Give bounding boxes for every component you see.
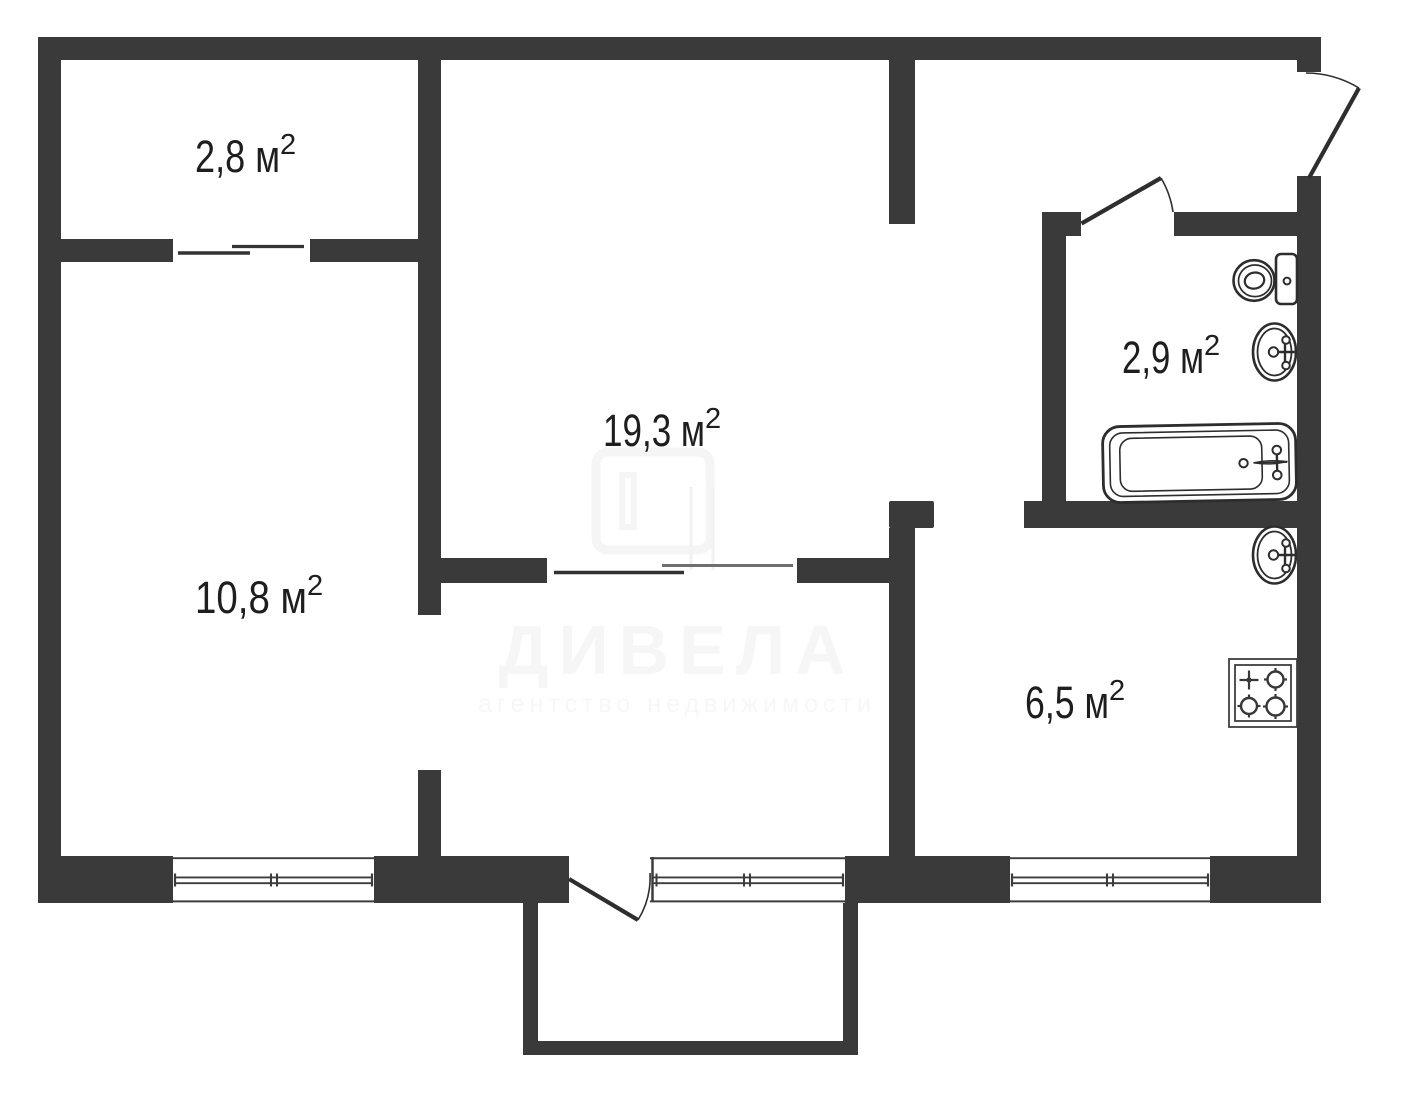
svg-text:6,5 м: 6,5 м <box>1025 677 1109 728</box>
svg-text:2: 2 <box>307 570 323 602</box>
svg-text:2: 2 <box>280 129 296 161</box>
svg-text:10,8 м: 10,8 м <box>195 572 307 623</box>
svg-text:19,3 м: 19,3 м <box>603 405 705 456</box>
svg-text:агентство недвижимости: агентство недвижимости <box>478 690 876 718</box>
svg-text:2: 2 <box>1204 330 1220 362</box>
svg-text:2,9 м: 2,9 м <box>1122 332 1204 383</box>
svg-text:2,8 м: 2,8 м <box>195 131 280 182</box>
svg-text:2: 2 <box>705 403 721 435</box>
svg-text:ДИВЕЛА: ДИВЕЛА <box>498 611 855 689</box>
svg-text:2: 2 <box>1109 675 1125 707</box>
